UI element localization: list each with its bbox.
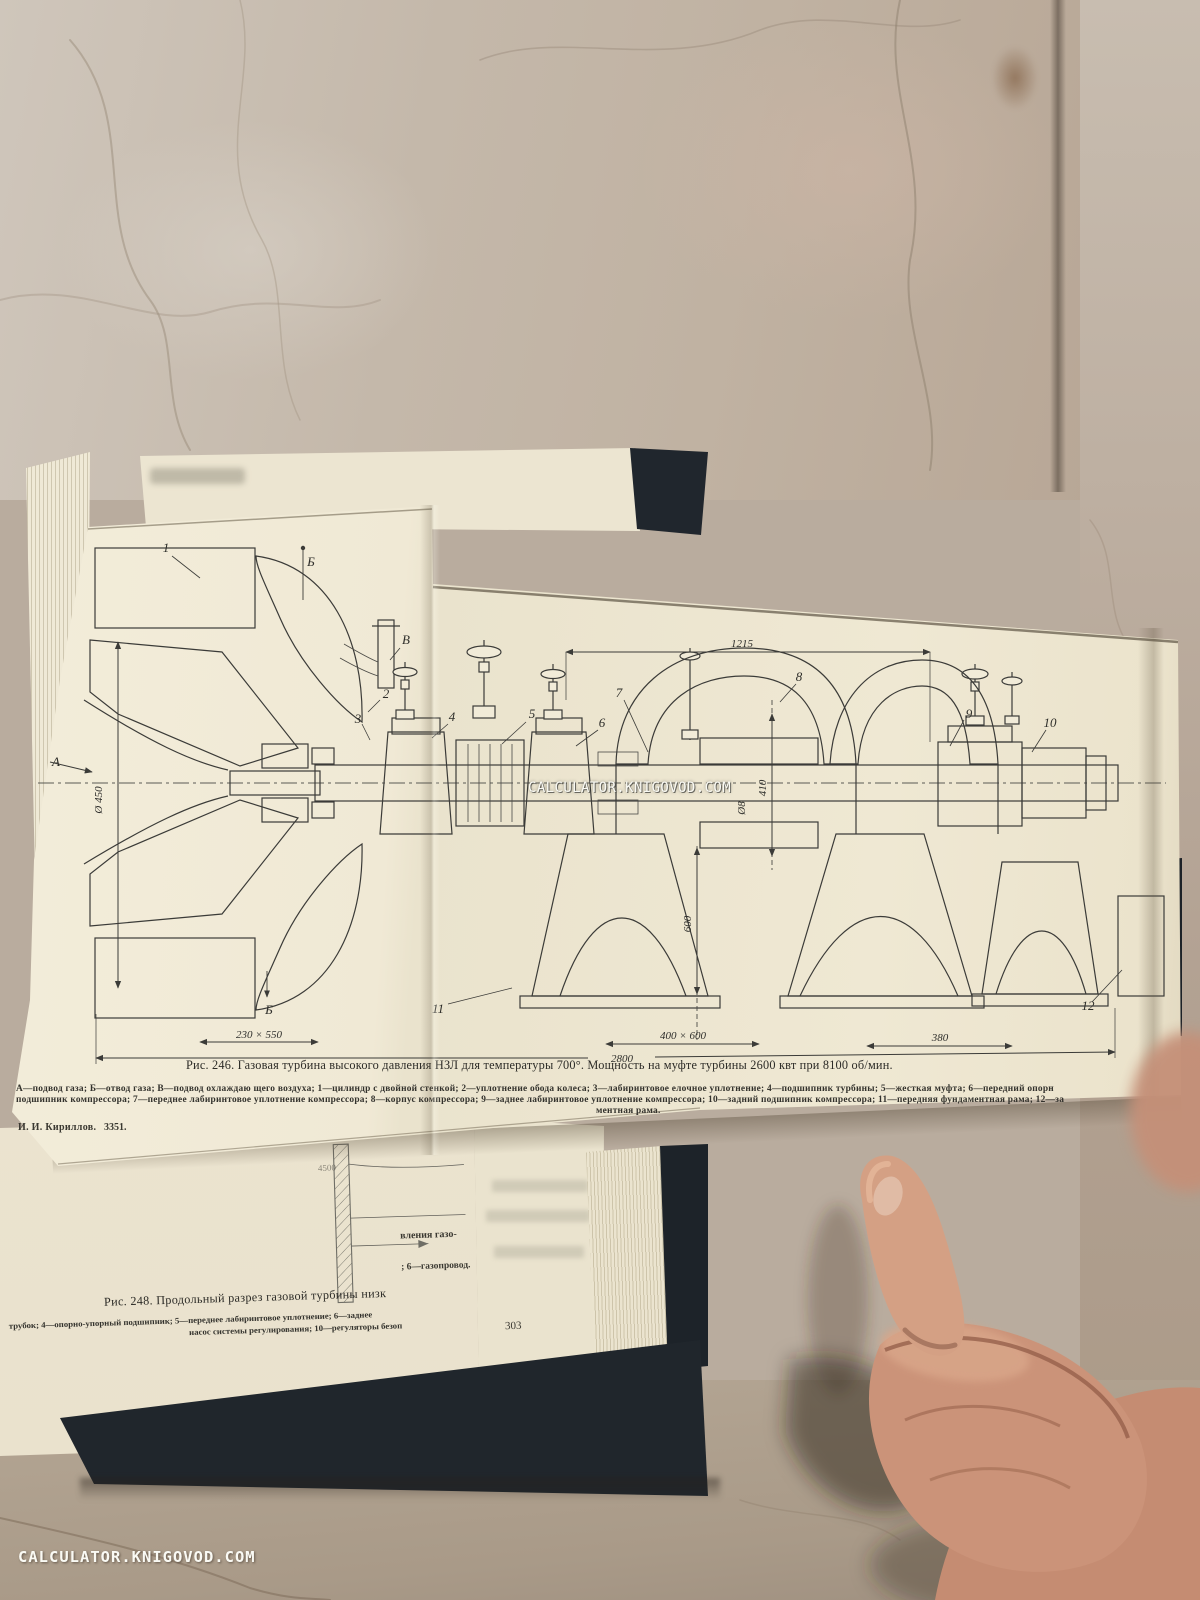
faint-print-fragment — [150, 468, 245, 484]
ink-bleed — [492, 1180, 588, 1192]
ink-bleed — [486, 1210, 590, 1222]
marble-stain — [992, 46, 1038, 110]
thumb-highlight — [869, 1164, 888, 1200]
foldout-crease-right — [1138, 628, 1164, 1098]
figure-246-caption: Рис. 246. Газовая турбина высокого давле… — [186, 1058, 1036, 1073]
figure-246-legend-line-1: А—подвод газа; Б—отвод газа; В—подвод ох… — [16, 1084, 1054, 1094]
photo-of-open-book: 4500 вления газо- ; 6—газопровод. Рис. 2… — [0, 0, 1200, 1600]
fig247-dim-fragment: 4500 — [318, 1163, 336, 1174]
watermark-bottom-left: CALCULATOR.KNIGOVOD.COM — [18, 1548, 256, 1566]
ink-bleed — [494, 1246, 584, 1258]
thumb — [860, 1155, 964, 1355]
book-shadow — [80, 1478, 720, 1500]
thumb-web-shadow — [905, 1330, 955, 1347]
figure-246-legend-line-3: ментная рама. — [596, 1106, 661, 1116]
knuckle-highlight — [877, 1314, 1033, 1390]
fig247-caption-fragment: вления газо- — [400, 1229, 457, 1242]
marble-seam-line — [1050, 0, 1066, 492]
foldout-crease — [420, 505, 440, 1155]
marble-light-patch — [60, 120, 440, 380]
author-name: И. И. Кириллов. — [18, 1122, 96, 1133]
watermark-center: CALCULATOR.KNIGOVOD.COM — [528, 780, 731, 796]
thumbnail — [869, 1173, 908, 1220]
page-number: 303 — [505, 1320, 522, 1333]
figure-246-legend-line-2: подшипник компрессора; 7—переднее лабири… — [16, 1095, 1064, 1105]
thumb-shadow — [808, 1205, 868, 1395]
print-code: 3351. — [104, 1122, 127, 1133]
